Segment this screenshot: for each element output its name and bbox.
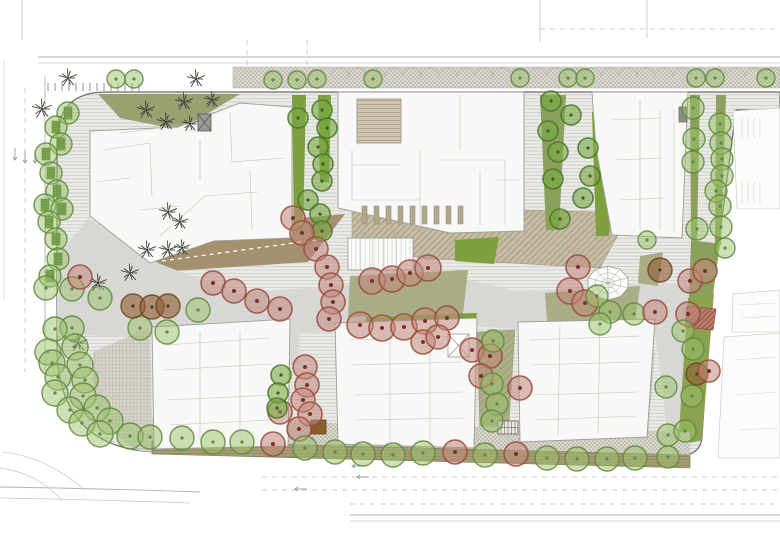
tree-green-center [70,326,73,329]
tree-green [271,365,291,385]
tree-green [559,69,577,87]
tree-green-center [98,296,101,299]
tree-red [68,265,92,289]
tree-branch [42,101,44,107]
tree-green [125,70,143,88]
site-plan-drawing [0,0,780,551]
tree-trunk [195,78,197,80]
tree-red-center [426,266,430,270]
tree-green-center [588,174,591,177]
tree-red-center [408,271,412,275]
tree-green [682,338,704,360]
neighbor-block-east-mid [732,290,780,332]
tree-green [186,298,210,322]
tree-trunk [189,123,191,125]
tree-green-center [148,435,151,438]
bottom-road-edge-2 [0,498,190,503]
tree-green [573,188,593,208]
tree-green-center [718,122,721,125]
terrace-roof-body [357,99,401,143]
plaza-step [458,206,463,224]
lane-arrow [23,151,27,163]
tree-green-center [558,217,561,220]
tree-green-center [608,310,611,313]
tree-red-center [297,427,301,431]
tree-green-center [645,238,648,241]
tree-green-center [713,76,716,79]
tree-green-center [320,179,323,182]
tree-green-center [421,451,424,454]
tree-green-center [720,174,723,177]
tree-green [201,430,225,454]
lawn-bright-small [455,237,499,264]
tree-green [580,166,600,186]
tree-green-center [586,146,589,149]
neighbor-block-east-bottom-footprint [718,333,780,458]
bottom-road-edge-1 [0,487,200,492]
tree-red-center [583,301,587,305]
tree-red-center [421,340,425,344]
tree-trunk [211,99,213,101]
tree-green-center [315,77,318,80]
tree-green [87,421,113,447]
tree-red-center [402,325,406,329]
tree-red-center [703,269,707,273]
plaza-step [446,206,451,224]
tree-red-center [325,265,329,269]
tree-green [351,442,375,466]
tree-green [264,71,282,89]
tree-red [415,255,441,281]
tree-red [566,255,590,279]
tree-green [288,108,308,128]
tree-green [323,440,347,464]
tree-red-center [688,279,692,283]
tree-green-center [598,322,601,325]
tree-green [481,410,503,432]
tree-green [623,446,647,470]
neighbor-block-east-mid-footprint [732,290,780,332]
plaza-step [374,206,379,224]
tree-green-center [666,455,669,458]
tree-red-center [518,386,522,390]
tree-red-center [390,277,394,281]
tree-green-center [275,406,278,409]
tree-green-center [695,227,698,230]
tree-green [674,420,696,442]
tree-green [548,142,568,162]
tree-green-center [80,421,83,424]
plaza-step [362,206,367,224]
tree-red [698,360,720,382]
tree-green-center [664,385,667,388]
tree-red-center [255,299,259,303]
tree-green [578,138,598,158]
tree-red-center [453,450,457,454]
tree-green-center [518,76,521,79]
existing-tree-symbol [187,70,205,87]
tree-green [682,151,704,173]
tree-green-center [276,391,279,394]
tree-green [655,376,677,398]
tree-green-center [595,294,598,297]
tree-green-center [691,160,694,163]
neighbor-block-east-top [733,108,780,209]
tree-red-center [329,283,333,287]
tree-green [138,425,162,449]
tree-green [715,238,735,258]
tree-green [657,446,679,468]
tree-brown-center [166,304,169,307]
tree-green-center [320,108,323,111]
tree-green [170,426,194,450]
tree-trunk [167,211,169,213]
tree-green-center [581,196,584,199]
tree-red [261,432,285,456]
tree-red [268,297,292,321]
tree-red-center [78,275,82,279]
tree-green-center [605,457,608,460]
plaza-step [422,206,427,224]
tree-red-center [423,319,427,323]
building-southeast-footprint [518,319,655,442]
tree-green [43,317,67,341]
tree-red-center [514,452,518,456]
tree-branch [197,76,205,79]
tree-green-center [690,394,693,397]
tree-green-center [545,456,548,459]
tree-green [155,320,179,344]
tree-red-center [291,216,295,220]
tree-green-center [53,391,56,394]
tree-green-center [569,113,572,116]
tree-red-center [576,265,580,269]
tree-red [508,376,532,400]
tree-green-center [723,246,726,249]
tree-green-center [549,99,552,102]
tree-green-center [361,452,364,455]
plaza-step [434,206,439,224]
tree-green-center [546,129,549,132]
tree-green-center [694,76,697,79]
tree-green [576,69,594,87]
tree-green [473,443,497,467]
tree-green-center [583,76,586,79]
tree-green [230,430,254,454]
tree-green [638,231,656,249]
tree-green-center [240,440,243,443]
tree-green-center [691,347,694,350]
tree-green [288,71,306,89]
plaza-step [386,206,391,224]
plaza-step [410,206,415,224]
tree-green-center [303,446,306,449]
tree-green-center [719,225,722,228]
tree-red-center [653,310,657,314]
tree-trunk [146,249,148,251]
tree-green-center [575,457,578,460]
tree-red-center [380,326,384,330]
tree-trunk [41,108,43,110]
tree-green [543,169,563,189]
tree-green-center [681,329,684,332]
tree-red-center [301,398,305,402]
tree-green-center [551,177,554,180]
tree-green-center [320,229,323,232]
tree-red [426,325,450,349]
tree-green-center [316,145,319,148]
tree-green-center [633,456,636,459]
tree-green-center [95,406,98,409]
tree-red-center [327,317,331,321]
tree-green-center [73,345,76,348]
tree-trunk [181,247,183,249]
tree-green [550,209,570,229]
tree-green-center [295,78,298,81]
tree-green [308,70,326,88]
lane-arrow [13,148,17,160]
tree-green [589,313,611,335]
tree-green [706,69,724,87]
tree-branch [196,72,198,78]
existing-tree-symbol [32,99,52,118]
corner-curve-2 [0,468,62,500]
tree-red-center [686,312,690,316]
tree-branch [69,75,77,78]
tree-green-center [720,157,723,160]
tree-green-center [490,419,493,422]
tree-green [681,385,703,407]
tree-trunk [67,77,69,79]
tree-green-center [56,375,59,378]
lane-arrow [357,475,369,479]
tree-green-center [683,429,686,432]
tree-green [687,69,705,87]
tree-red-center [305,383,309,387]
tree-red [443,440,467,464]
tree-green [686,218,708,240]
tree-green-center [114,77,117,80]
terrace-roof [357,99,401,143]
tree-branch [68,71,70,77]
tree-green-center [98,432,101,435]
tree-red-center [211,281,215,285]
tree-green-center [718,204,721,207]
building-southeast [518,319,655,442]
tree-brown-center [150,305,153,308]
tree-brown-center [658,268,661,271]
tree-red-center [470,348,474,352]
tree-green-center [556,150,559,153]
tree-green-center [692,137,695,140]
tree-green-center [491,339,494,342]
tree-green [757,69,775,87]
tree-green-center [296,116,299,119]
tree-red-center [370,279,374,283]
tree-trunk [165,121,167,123]
tree-green [482,330,504,352]
tree-green [312,100,332,120]
tree-red-center [488,354,492,358]
tree-trunk [167,249,169,251]
tree-green [88,286,112,310]
tree-red-center [300,231,304,235]
tree-green [561,105,581,125]
tree-green-center [83,378,86,381]
tree-green-center [50,361,53,364]
tree-trunk [145,109,147,111]
tree-green [623,303,645,325]
tree-green-center [132,77,135,80]
tree-red-center [707,369,711,373]
tree-trunk [183,101,185,103]
tree-trunk [179,221,181,223]
tree-green-center [306,198,309,201]
tree-green-center [666,433,669,436]
tree-green-center [391,453,394,456]
tree-green [293,436,317,460]
tree-green [595,447,619,471]
tree-green-center [165,330,168,333]
tree-green [364,70,382,88]
tree-red-center [303,365,307,369]
tree-green-center [490,382,493,385]
tree-green [535,446,559,470]
tree-red [317,307,341,331]
site-plan-svg [0,0,780,551]
tree-green-center [53,327,56,330]
tree-green [312,171,332,191]
tree-green [267,398,287,418]
tree-red [222,279,246,303]
tree-red [504,442,528,466]
tree-red-center [278,307,282,311]
tree-green-center [196,308,199,311]
tree-green-center [78,363,81,366]
tree-green-center [371,77,374,80]
tree-red [643,300,667,324]
tree-green [411,441,435,465]
tree-red-center [568,289,572,293]
tree-green [481,373,503,395]
tree-green-center [333,450,336,453]
tree-green-center [180,436,183,439]
tree-red-center [331,300,335,304]
tree-green-center [279,373,282,376]
neighbor-block-east-top-footprint [733,108,780,209]
tree-green-center [211,440,214,443]
tree-green-center [318,212,321,215]
tree-green [128,316,152,340]
tree-green-center [128,434,131,437]
tree-green-center [81,394,84,397]
tree-green-center [325,126,328,129]
tree-green [709,195,731,217]
tree-green-center [70,287,73,290]
tree-red-center [308,412,312,416]
tree-brown-center [131,304,134,307]
neighbor-block-east-bottom [718,333,780,458]
tree-green-center [108,419,111,422]
tree-red-center [271,442,275,446]
tree-green-center [719,141,722,144]
tree-green [538,121,558,141]
tree-green-center [271,78,274,81]
tree-red-center [445,316,449,320]
tree-green-center [44,286,47,289]
tree-green-center [483,453,486,456]
tree-green [541,91,561,111]
tree-red [693,259,717,283]
tree-green [565,447,589,471]
tree-green-center [68,408,71,411]
tree-green-center [321,162,324,165]
tree-green-center [714,189,717,192]
tree-green-center [632,312,635,315]
tree-green [682,97,704,119]
tree-green-center [566,76,569,79]
kiosk-structure [198,114,211,131]
tree-green-center [764,76,767,79]
tree-green [34,276,58,300]
tree-green-center [495,402,498,405]
tree-trunk [97,282,99,284]
tree-green-center [138,326,141,329]
tree-green [381,443,405,467]
tree-red-center [314,247,318,251]
tree-trunk [129,272,131,274]
tree-green-center [691,106,694,109]
tree-brown [648,258,672,282]
tree-green [710,216,732,238]
tree-green-grate [45,228,67,250]
tree-brown [156,294,180,318]
tree-green [317,118,337,138]
tree-red-center [358,323,362,327]
tree-red-center [436,335,440,339]
tree-green [683,128,705,150]
tree-green [107,70,125,88]
plaza-step [398,206,403,224]
tree-green [511,69,529,87]
tree-red-center [232,289,236,293]
tree-red [245,289,269,313]
